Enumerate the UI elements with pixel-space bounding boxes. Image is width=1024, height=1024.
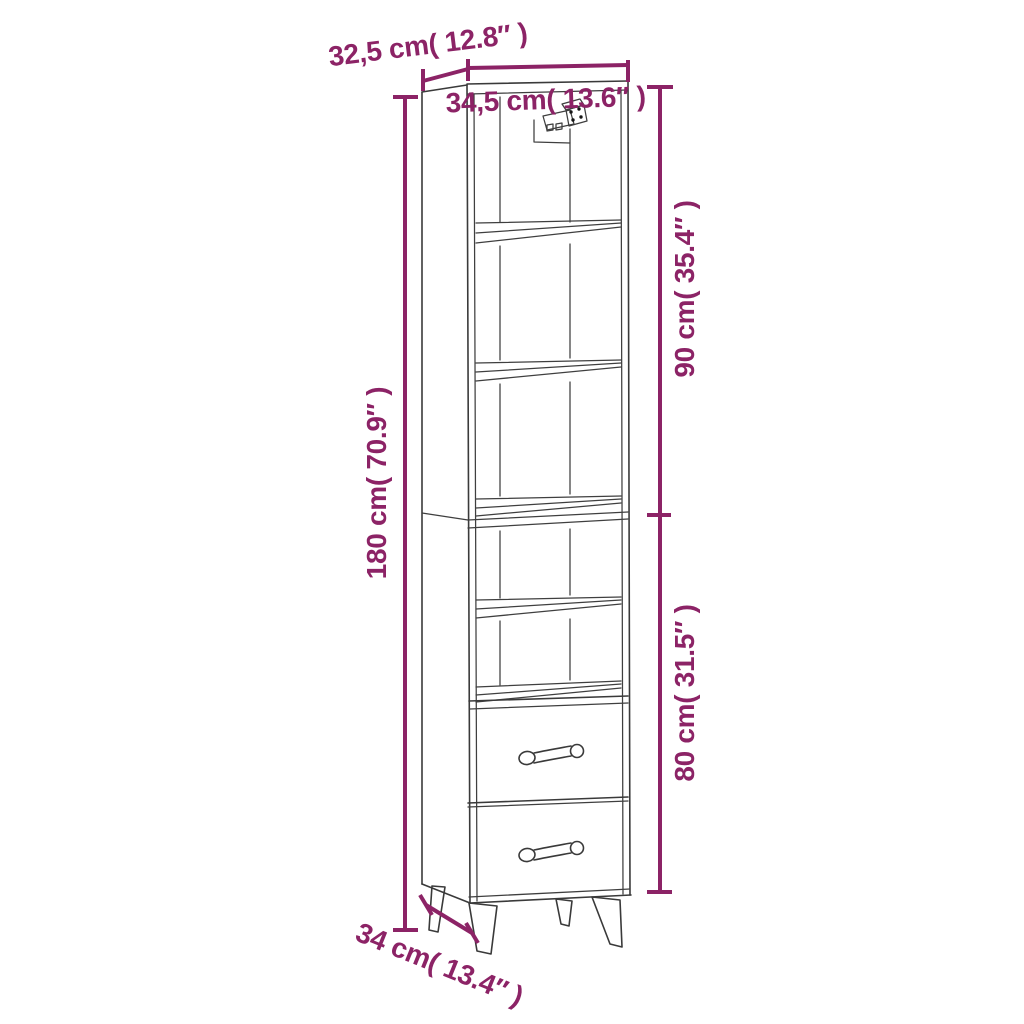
dimension-lower-section-height: 80 cm( 31.5″ ) [647,515,700,892]
drawer-top-inner-edge [470,703,628,709]
drawer-handle-icon [518,745,583,766]
leg-front-right [592,897,622,947]
dimension-upper-section-height: 90 cm( 35.4″ ) [647,87,700,515]
unit-junction-line-upper [468,512,628,520]
right-stile-inner-line [621,90,623,894]
compartment-back-corner-lines [500,97,570,685]
lower-section-height-label: 80 cm( 31.5″ ) [669,604,700,781]
dimension-base-depth: 34 cm( 13.4″ ) [352,895,528,1012]
side-panel-bottom-edge [422,884,470,903]
total-height-label: 180 cm( 70.9″ ) [361,387,392,580]
dimension-line [423,69,468,81]
top-depth-label: 32,5 cm( 12.8″ ) [327,17,529,72]
shelf-2 [476,360,621,381]
right-edge [628,81,630,895]
upper-section-height-label: 90 cm( 35.4″ ) [669,200,700,377]
dimension-line [468,65,628,68]
cabinet-shelves [476,220,621,702]
diagram-svg: 180 cm( 70.9″ ) 90 cm( 35.4″ ) 80 cm( 31… [0,0,1024,1024]
cabinet-drawers [468,696,630,897]
drawer-handle-icon [518,842,583,863]
drawer-top-edge [469,696,628,701]
bracket-screw-hole [571,118,574,121]
unit-junction-side-seam [422,513,468,520]
dimension-annotations: 180 cm( 70.9″ ) 90 cm( 35.4″ ) 80 cm( 31… [327,17,700,1012]
front-left-edge [467,85,470,903]
dimension-top-depth: 32,5 cm( 12.8″ ) [327,17,529,91]
bracket-screw-hole [579,115,582,118]
dimension-line [426,905,472,933]
leg-front-left [469,903,497,954]
shelf-3 [476,597,621,618]
unit-junction-line-lower [468,519,628,528]
left-stile-inner-line [474,94,477,901]
dimension-top-width: 34,5 cm( 13.6″ ) [445,60,646,118]
cabinet-carcass [422,81,631,903]
leg-back-right [556,899,572,926]
shelf-1 [476,220,621,243]
cabinet-drawing [422,81,631,954]
base-depth-label: 34 cm( 13.4″ ) [352,917,528,1012]
dimension-total-height: 180 cm( 70.9″ ) [361,97,418,930]
product-dimension-diagram: 180 cm( 70.9″ ) 90 cm( 35.4″ ) 80 cm( 31… [0,0,1024,1024]
bracket-outline [534,120,570,143]
dimension-tick [466,923,478,943]
top-width-label: 34,5 cm( 13.6″ ) [445,81,646,119]
